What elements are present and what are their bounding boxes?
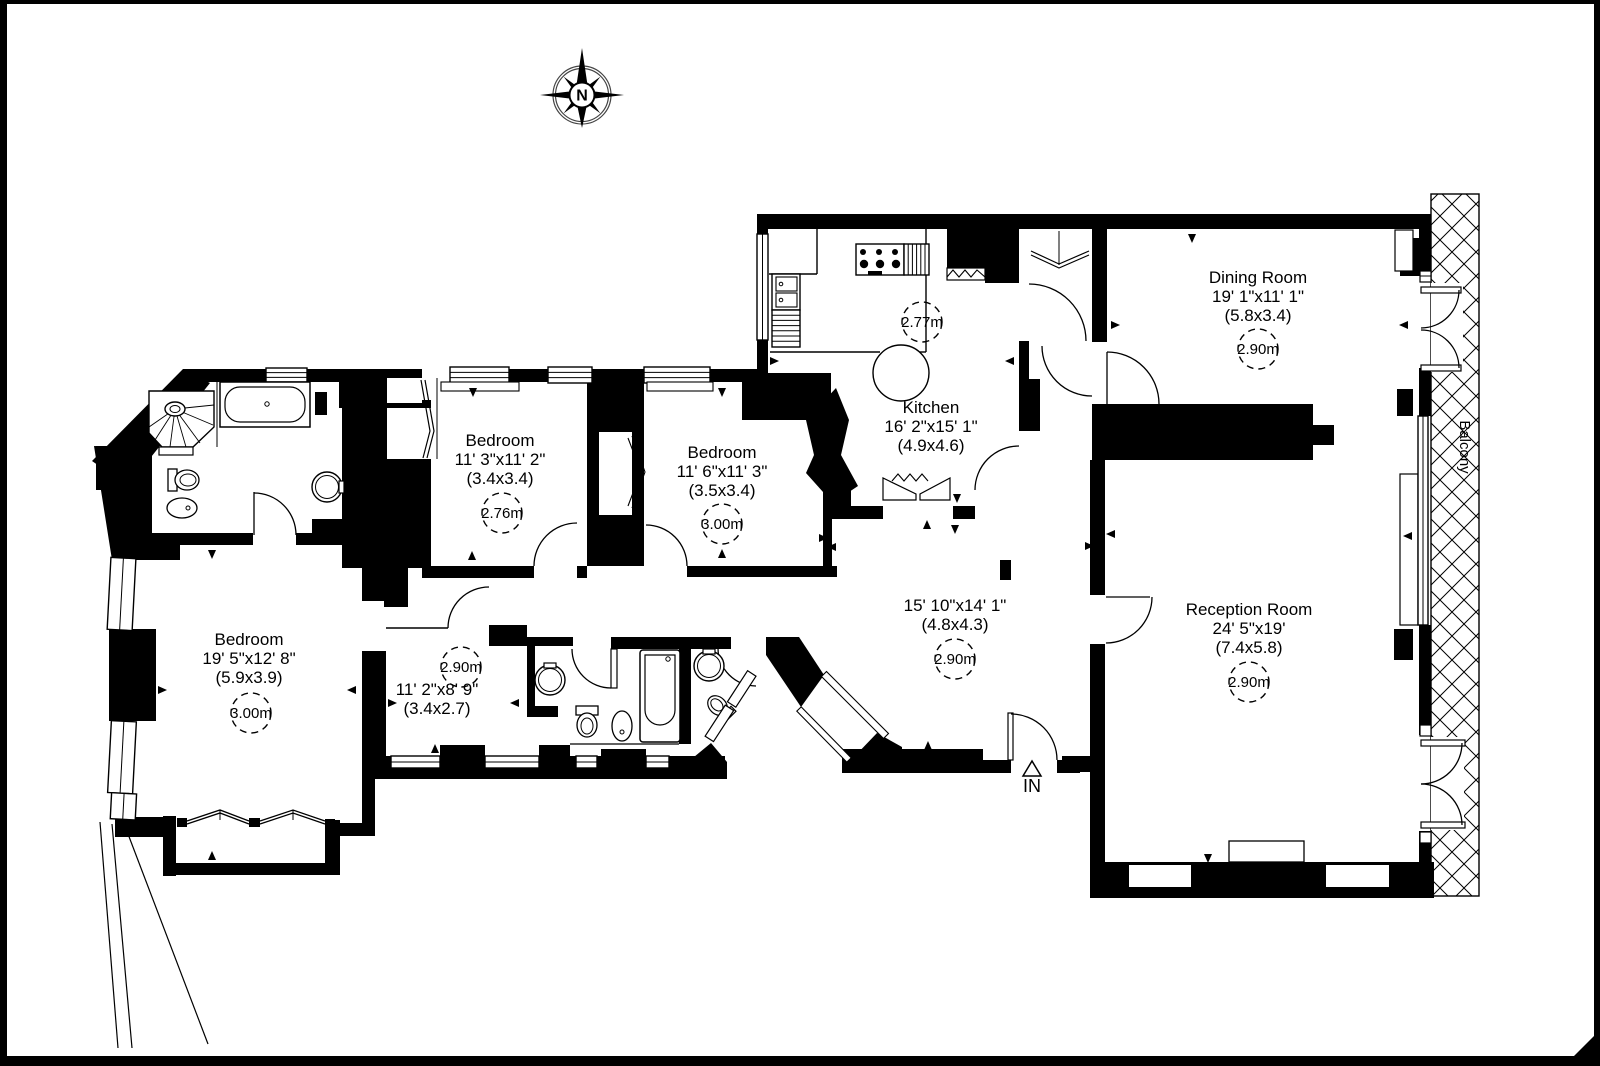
svg-text:Dining Room: Dining Room (1209, 268, 1307, 287)
svg-text:11' 2"x8' 9": 11' 2"x8' 9" (396, 680, 479, 699)
svg-text:15' 10"x14' 1": 15' 10"x14' 1" (904, 596, 1007, 615)
svg-text:(3.4x2.7): (3.4x2.7) (403, 699, 470, 718)
svg-text:(4.9x4.6): (4.9x4.6) (897, 436, 964, 455)
svg-text:Bedroom: Bedroom (688, 443, 757, 462)
svg-text:2.77m: 2.77m (901, 314, 943, 331)
svg-text:2.90m: 2.90m (1237, 341, 1279, 358)
svg-text:2.90m: 2.90m (934, 651, 976, 668)
svg-text:2.76m: 2.76m (481, 505, 523, 522)
svg-text:16' 2"x15' 1": 16' 2"x15' 1" (884, 417, 977, 436)
svg-text:2.90m: 2.90m (1228, 674, 1270, 691)
svg-text:IN: IN (1023, 776, 1041, 796)
svg-text:11' 3"x11' 2": 11' 3"x11' 2" (455, 450, 546, 469)
svg-text:N: N (576, 88, 588, 105)
svg-text:3.00m: 3.00m (701, 516, 743, 533)
svg-text:11' 6"x11' 3": 11' 6"x11' 3" (677, 462, 768, 481)
svg-text:(3.5x3.4): (3.5x3.4) (688, 481, 755, 500)
svg-text:Reception Room: Reception Room (1186, 600, 1313, 619)
svg-text:24' 5"x19': 24' 5"x19' (1212, 619, 1285, 638)
svg-text:(3.4x3.4): (3.4x3.4) (466, 469, 533, 488)
svg-text:3.00m: 3.00m (230, 705, 272, 722)
svg-text:(5.9x3.9): (5.9x3.9) (215, 668, 282, 687)
svg-text:(4.8x4.3): (4.8x4.3) (921, 615, 988, 634)
svg-text:(7.4x5.8): (7.4x5.8) (1215, 638, 1282, 657)
svg-text:19' 1"x11' 1": 19' 1"x11' 1" (1212, 287, 1304, 306)
svg-text:2.90m: 2.90m (440, 659, 482, 676)
svg-text:Bedroom: Bedroom (215, 630, 284, 649)
svg-text:Balcony: Balcony (1456, 420, 1473, 474)
svg-text:Kitchen: Kitchen (903, 398, 960, 417)
svg-text:Bedroom: Bedroom (466, 431, 535, 450)
svg-text:19' 5"x12' 8": 19' 5"x12' 8" (202, 649, 295, 668)
svg-text:(5.8x3.4): (5.8x3.4) (1224, 306, 1291, 325)
